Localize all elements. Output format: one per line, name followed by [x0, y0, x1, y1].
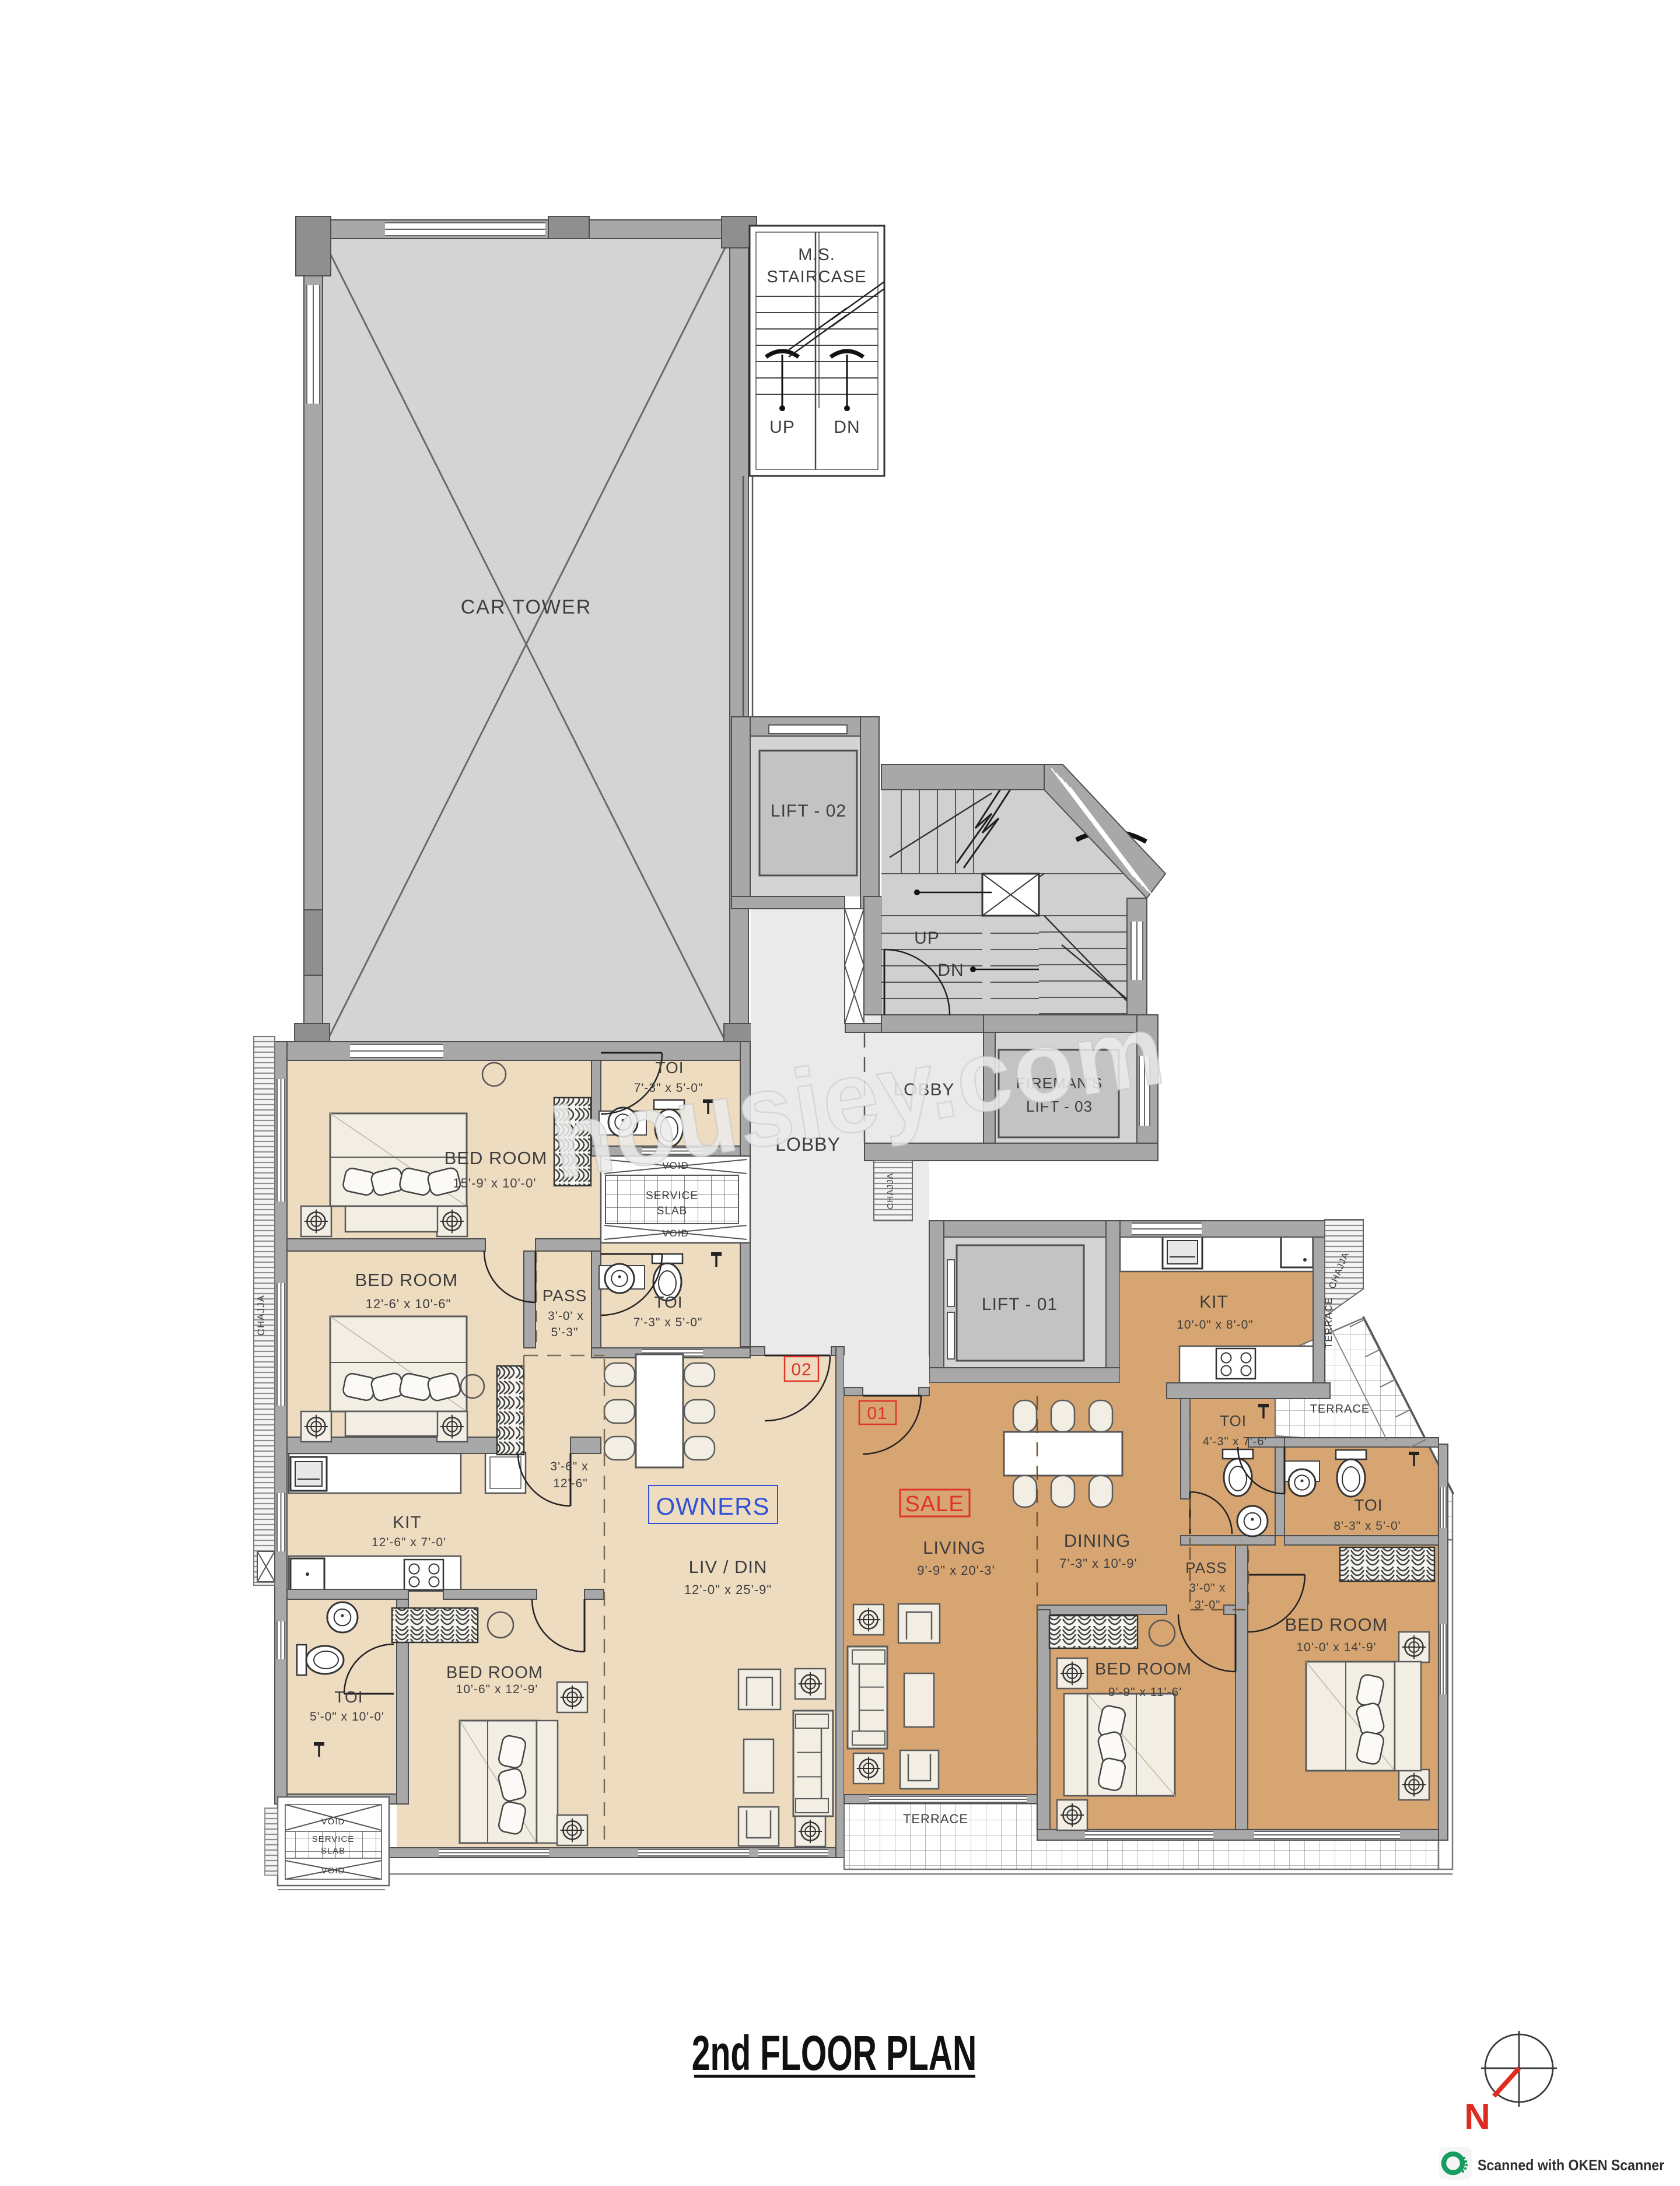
- svg-text:M.S.: M.S.: [798, 246, 835, 264]
- svg-text:BED ROOM: BED ROOM: [355, 1270, 459, 1290]
- svg-text:7'-3" x 5'-0": 7'-3" x 5'-0": [633, 1316, 703, 1329]
- svg-text:OWNERS: OWNERS: [656, 1493, 770, 1520]
- svg-text:PASS: PASS: [542, 1287, 587, 1305]
- svg-text:5'-3": 5'-3": [551, 1326, 579, 1339]
- svg-text:9'-9" x 20'-3': 9'-9" x 20'-3': [917, 1563, 995, 1578]
- svg-text:TERRACE: TERRACE: [1323, 1297, 1334, 1348]
- svg-text:BED ROOM: BED ROOM: [444, 1148, 548, 1168]
- svg-text:3'-6" x: 3'-6" x: [550, 1460, 588, 1473]
- svg-text:LIFT - 01: LIFT - 01: [982, 1295, 1058, 1314]
- svg-text:KIT: KIT: [1199, 1292, 1228, 1312]
- svg-text:LIV / DIN: LIV / DIN: [689, 1557, 768, 1577]
- svg-text:LIVING: LIVING: [923, 1537, 986, 1558]
- svg-text:02: 02: [791, 1360, 811, 1379]
- svg-text:3'-0' x: 3'-0' x: [548, 1309, 584, 1323]
- svg-text:4'-3" x 7'-6': 4'-3" x 7'-6': [1203, 1435, 1267, 1448]
- svg-text:TERRACE: TERRACE: [1310, 1403, 1370, 1416]
- svg-text:15'-9' x 10'-0': 15'-9' x 10'-0': [453, 1176, 536, 1190]
- svg-text:DN: DN: [834, 418, 860, 437]
- svg-text:KIT: KIT: [393, 1513, 422, 1532]
- svg-text:CHAJJA: CHAJJA: [256, 1295, 267, 1336]
- svg-text:PASS: PASS: [1185, 1559, 1227, 1577]
- svg-text:TOI: TOI: [1354, 1496, 1382, 1514]
- svg-text:LIFT - 02: LIFT - 02: [771, 801, 846, 821]
- svg-text:12'-6' x 10'-6": 12'-6' x 10'-6": [366, 1297, 452, 1311]
- svg-text:TOI: TOI: [1220, 1412, 1247, 1430]
- svg-text:DINING: DINING: [1064, 1530, 1131, 1551]
- svg-text:SLAB: SLAB: [657, 1205, 688, 1217]
- svg-text:2nd FLOOR PLAN: 2nd FLOOR PLAN: [692, 2026, 977, 2081]
- svg-text:N: N: [1464, 2097, 1491, 2137]
- svg-text:12'-6" x 7'-0': 12'-6" x 7'-0': [372, 1536, 446, 1549]
- svg-text:SERVICE: SERVICE: [312, 1834, 355, 1844]
- svg-text:UP: UP: [769, 418, 795, 437]
- svg-text:BED ROOM: BED ROOM: [446, 1663, 543, 1682]
- svg-text:SLAB: SLAB: [321, 1846, 345, 1856]
- svg-text:10'-6" x 12'-9': 10'-6" x 12'-9': [456, 1683, 538, 1696]
- svg-text:DN: DN: [937, 961, 964, 980]
- svg-text:TOI: TOI: [654, 1293, 682, 1311]
- svg-text:7'-3" x 10'-9': 7'-3" x 10'-9': [1059, 1556, 1137, 1571]
- svg-text:01: 01: [867, 1404, 887, 1423]
- svg-text:VOID: VOID: [321, 1817, 345, 1827]
- svg-text:8'-3" x 5'-0': 8'-3" x 5'-0': [1333, 1519, 1401, 1533]
- svg-text:9'-9" x 11'-6': 9'-9" x 11'-6': [1108, 1686, 1182, 1699]
- svg-text:12'-0" x 25'-9": 12'-0" x 25'-9": [684, 1582, 772, 1597]
- svg-text:SALE: SALE: [905, 1492, 964, 1516]
- svg-text:TERRACE: TERRACE: [903, 1812, 968, 1826]
- svg-text:10'-0" x 8'-0": 10'-0" x 8'-0": [1177, 1318, 1253, 1332]
- svg-text:5'-0" x 10'-0': 5'-0" x 10'-0': [310, 1710, 384, 1723]
- svg-text:TOI: TOI: [334, 1688, 363, 1706]
- svg-text:VOID: VOID: [321, 1866, 345, 1876]
- svg-text:BED ROOM: BED ROOM: [1285, 1614, 1388, 1635]
- svg-text:Scanned with OKEN Scanner: Scanned with OKEN Scanner: [1478, 2157, 1665, 2174]
- svg-text:12'-6": 12'-6": [553, 1477, 588, 1490]
- svg-text:10'-0' x 14'-9': 10'-0' x 14'-9': [1296, 1641, 1376, 1654]
- svg-text:VOID: VOID: [662, 1228, 689, 1239]
- svg-text:UP: UP: [914, 929, 940, 948]
- svg-text:3'-0": 3'-0": [1195, 1599, 1221, 1612]
- svg-text:BED ROOM: BED ROOM: [1095, 1660, 1192, 1679]
- svg-text:3'-0" x: 3'-0" x: [1189, 1582, 1226, 1595]
- svg-text:CHAJJA: CHAJJA: [885, 1173, 895, 1210]
- svg-text:CAR TOWER: CAR TOWER: [461, 596, 592, 618]
- svg-text:SERVICE: SERVICE: [646, 1190, 698, 1202]
- svg-text:STAIRCASE: STAIRCASE: [766, 268, 866, 286]
